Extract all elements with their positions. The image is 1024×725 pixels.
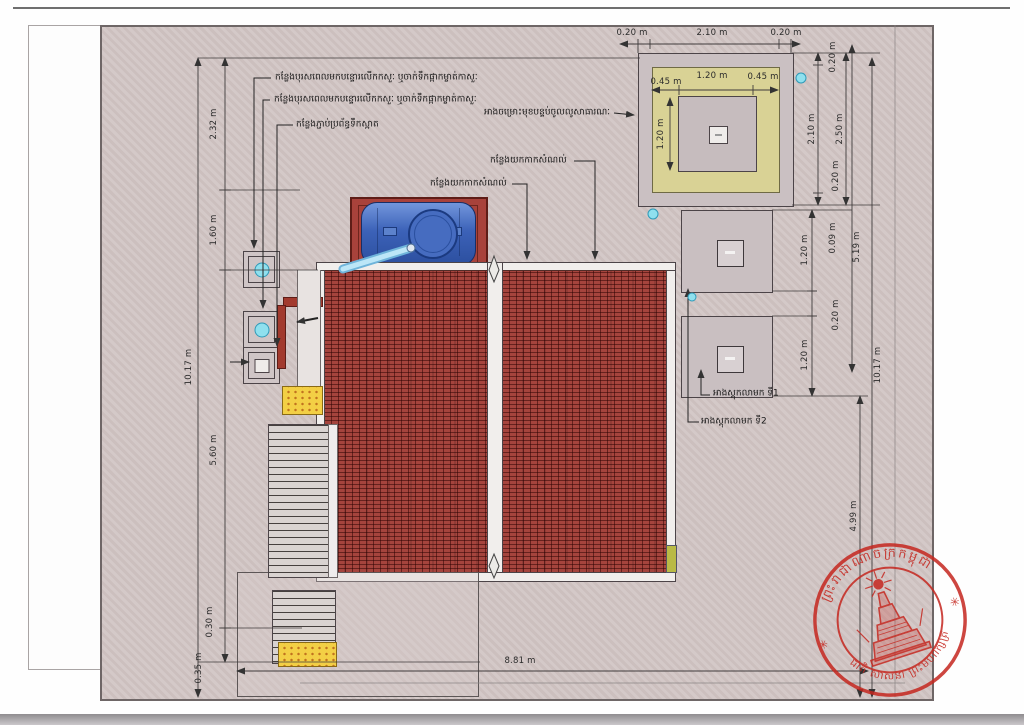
scan-bottom-bar [0, 714, 1024, 725]
tank-manhole [408, 209, 458, 259]
wall-segment-vertical [277, 305, 286, 369]
scanned-plan-page: 2.32 m1.60 m10.17 m5.60 m0.30 m0.35 m8.8… [0, 0, 1024, 725]
pipe-opening [254, 262, 269, 277]
pipe-opening [254, 322, 269, 337]
roof-ridge [487, 262, 503, 582]
storage-tank-pad-1 [681, 210, 773, 293]
vent-pipe-fixture-2 [243, 311, 280, 348]
tank-handle [383, 227, 397, 236]
connection-box [254, 359, 269, 373]
scan-edge-line [13, 7, 1010, 9]
left-margin-panel [28, 25, 102, 670]
pad-post [717, 346, 744, 373]
stamp-star-left: ✳ [816, 637, 830, 653]
vent-pipe-fixture-1 [243, 251, 280, 288]
tactile-pad-top [282, 386, 323, 415]
pad-post [717, 240, 744, 267]
tactile-pad-bottom [278, 642, 337, 667]
stair-stringer [328, 424, 338, 578]
clean-water-connection [243, 347, 280, 384]
staircase-upper-flight [268, 424, 330, 578]
official-red-stamp: ព្រះរាជាណាចក្រកម្ពុជា ជាតិ សាសនា ព្រះមហា… [806, 536, 974, 704]
filter-structure-post [709, 126, 728, 144]
roof-drain [666, 545, 677, 573]
roof-tiles-right [501, 270, 668, 574]
roof-edge-right [666, 270, 676, 574]
roof-tiles-left [323, 270, 489, 574]
storage-tank-pad-2 [681, 316, 773, 398]
tank-seam [377, 208, 378, 256]
